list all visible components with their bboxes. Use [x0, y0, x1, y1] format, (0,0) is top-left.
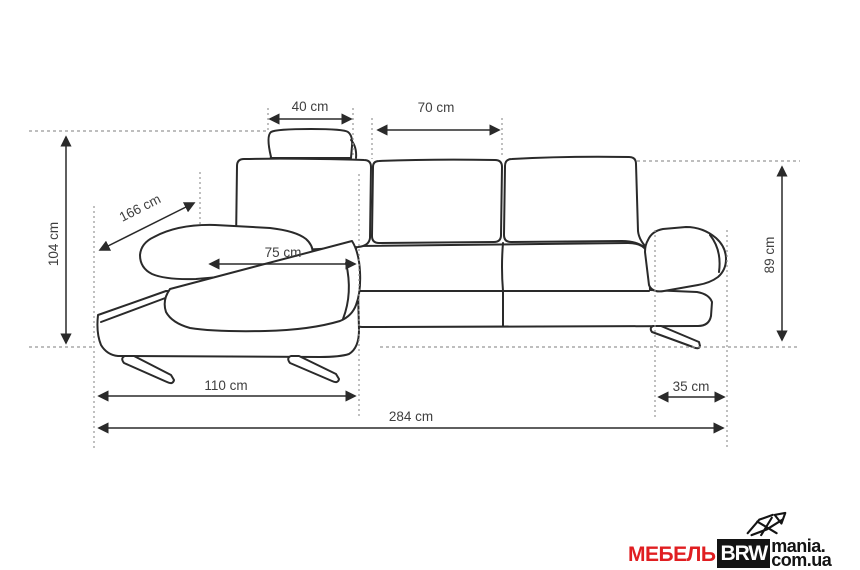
- sofa-backrest-middle: [372, 160, 502, 243]
- sofa-backrest-right: [504, 157, 649, 250]
- diagram-svg: 40 cm 70 cm 104 cm 166 cm 75 cm 89 cm 11…: [0, 0, 860, 570]
- dim-seat-width-label: 75 cm: [265, 245, 302, 260]
- dim-overall-length: 284 cm: [99, 409, 723, 428]
- vendor-watermark: МЕБЕЛЬ BRW mania.com.ua: [628, 511, 854, 569]
- dim-armrest-width: 35 cm: [659, 379, 724, 397]
- watermark-prefix: МЕБЕЛЬ: [628, 544, 715, 569]
- watermark-suffix-line2: com.ua: [771, 550, 831, 570]
- dim-chaise-width-label: 110 cm: [204, 378, 247, 393]
- dim-overall-height: 104 cm: [46, 137, 66, 343]
- dim-headrest-width: 40 cm: [270, 99, 351, 119]
- sofa-dimension-diagram: 40 cm 70 cm 104 cm 166 cm 75 cm 89 cm 11…: [0, 0, 860, 570]
- chair-icon: [742, 511, 790, 538]
- dim-middle-backrest-width-label: 70 cm: [418, 100, 455, 115]
- sofa-headrest: [269, 129, 353, 158]
- sofa-leg-front-right: [288, 356, 339, 382]
- dim-chaise-diagonal-label: 166 cm: [117, 191, 163, 224]
- dim-backrest-height-label: 89 cm: [762, 237, 777, 274]
- sofa-seat-division-seam: [502, 243, 503, 326]
- watermark-suffix: mania.com.ua: [771, 539, 831, 569]
- dim-armrest-width-label: 35 cm: [673, 379, 710, 394]
- sofa-leg-front-left: [122, 356, 174, 383]
- sofa-drawing: [97, 129, 726, 383]
- watermark-brand-box: BRW: [717, 539, 770, 568]
- sofa-leg-right: [651, 326, 700, 348]
- dim-backrest-height: 89 cm: [762, 167, 782, 340]
- sofa-armrest-right: [645, 227, 726, 291]
- dim-headrest-width-label: 40 cm: [292, 99, 329, 114]
- dim-middle-backrest-width: 70 cm: [378, 100, 499, 130]
- dim-chaise-width: 110 cm: [99, 378, 355, 396]
- dim-overall-length-label: 284 cm: [389, 409, 433, 424]
- dim-overall-height-label: 104 cm: [46, 222, 61, 266]
